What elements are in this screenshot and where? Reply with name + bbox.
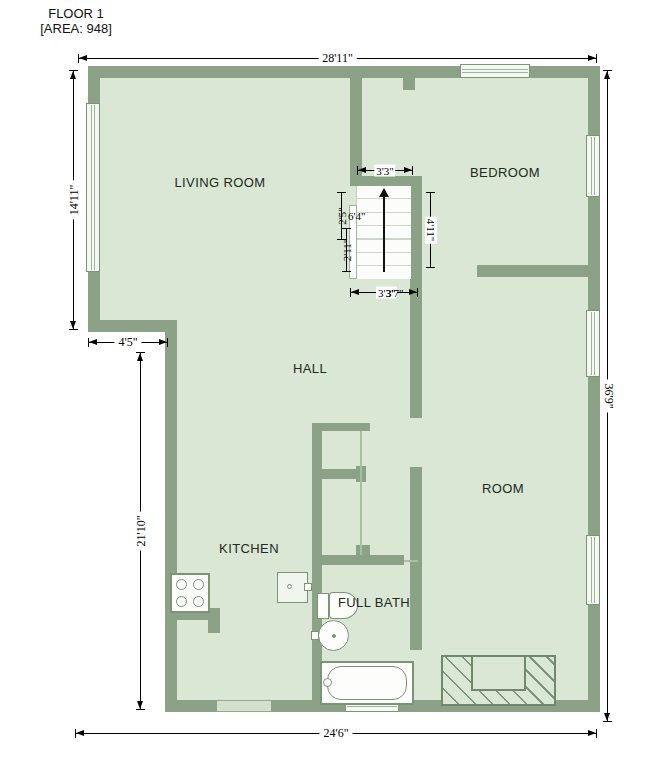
bathtub-icon xyxy=(320,661,414,705)
window-room-right-lower xyxy=(586,535,600,605)
dim-left-lower: 21'10" xyxy=(140,352,141,710)
sink-icon xyxy=(318,620,349,651)
dim-stair-left-a: 2'5" xyxy=(341,192,342,240)
sink-drain xyxy=(332,634,336,638)
bathtub-basin xyxy=(327,666,407,700)
window-glass xyxy=(91,105,95,270)
room-label-full-bath: FULL BATH xyxy=(338,595,410,610)
dim-left-upper: 14'11" xyxy=(73,70,74,330)
window-bedroom-top xyxy=(460,64,530,78)
appliance-handle xyxy=(304,583,312,591)
floor-area-upper xyxy=(100,78,588,320)
dim-label-stair-top: 3'3" xyxy=(374,165,395,177)
stair-direction-line xyxy=(383,196,385,272)
wall-hall-divider-lower xyxy=(410,467,422,650)
hatched-stairs-icon xyxy=(441,655,556,706)
window-glass xyxy=(591,312,595,375)
window-room-right-upper xyxy=(586,310,600,377)
burner-icon xyxy=(176,579,187,590)
toilet-tank xyxy=(317,593,329,619)
wall-stub-top xyxy=(403,78,415,90)
dim-label-right: 36'9" xyxy=(601,379,616,412)
wall-bedroom-bottom xyxy=(477,265,588,277)
dim-label-top: 28'11" xyxy=(318,51,357,66)
burner-icon xyxy=(176,596,187,607)
wall-exterior-left-lower xyxy=(165,320,177,712)
plan-title: FLOOR 1 [AREA: 948] xyxy=(30,6,122,36)
burner-icon xyxy=(193,596,204,607)
dim-label-stair-right: 4'11" xyxy=(425,217,437,244)
window-glass xyxy=(462,69,528,73)
dim-label-stair-left-c: 2'11" xyxy=(341,237,353,264)
floor-area-lower xyxy=(177,320,588,700)
bath-door-threshold xyxy=(404,560,418,562)
room-label-room: ROOM xyxy=(482,481,524,496)
room-label-bedroom: BEDROOM xyxy=(470,165,540,180)
dim-label-notch: 4'5" xyxy=(114,335,141,350)
dim-label-bottom: 24'6" xyxy=(319,726,352,741)
dim-right: 36'9" xyxy=(607,70,608,722)
dim-stair-left-c: 2'11" xyxy=(346,228,347,272)
room-label-hall: HALL xyxy=(293,361,327,376)
window-living-room-left xyxy=(86,103,100,272)
dim-notch: 4'5" xyxy=(88,342,168,343)
stove-icon xyxy=(170,573,210,613)
dim-stair-right: 4'11" xyxy=(430,192,431,268)
stair-up-arrow-icon xyxy=(379,188,389,197)
dim-top: 28'11" xyxy=(78,58,597,59)
appliance-knob xyxy=(287,584,292,589)
dim-stair-bottom: 3'3" 3'7" xyxy=(350,292,418,293)
closet-front-line xyxy=(360,431,362,555)
room-label-kitchen: KITCHEN xyxy=(219,541,279,556)
kitchen-exterior-door-opening xyxy=(217,700,271,712)
window-bedroom-right xyxy=(586,135,600,197)
appliance-icon xyxy=(277,572,308,603)
dim-label-left-upper: 14'11" xyxy=(67,181,82,220)
room-label-living: LIVING ROOM xyxy=(174,175,265,190)
wall-notch-step xyxy=(88,320,177,332)
dim-label-stair-left-b: 6'4" xyxy=(344,210,369,222)
sink-faucet xyxy=(311,631,319,640)
floor-plan: FLOOR 1 [AREA: 948] xyxy=(0,0,650,765)
dim-label-stair-bottom-b: 3'7" xyxy=(384,287,405,299)
dim-bottom: 24'6" xyxy=(75,733,597,734)
bathtub-faucet xyxy=(323,678,332,687)
wall-bath-top-corner xyxy=(356,545,370,565)
burner-icon xyxy=(193,579,204,590)
window-glass xyxy=(591,137,595,195)
wall-hall-divider-upper xyxy=(410,176,422,418)
hatched-stairs-landing xyxy=(471,655,526,691)
window-glass xyxy=(591,537,595,603)
area-label: [AREA: 948] xyxy=(30,21,122,36)
floor-title: FLOOR 1 xyxy=(30,6,122,21)
dim-stair-top: 3'3" xyxy=(357,170,413,171)
dim-label-left-lower: 21'10" xyxy=(134,511,149,550)
wall-closet-top xyxy=(312,423,370,431)
